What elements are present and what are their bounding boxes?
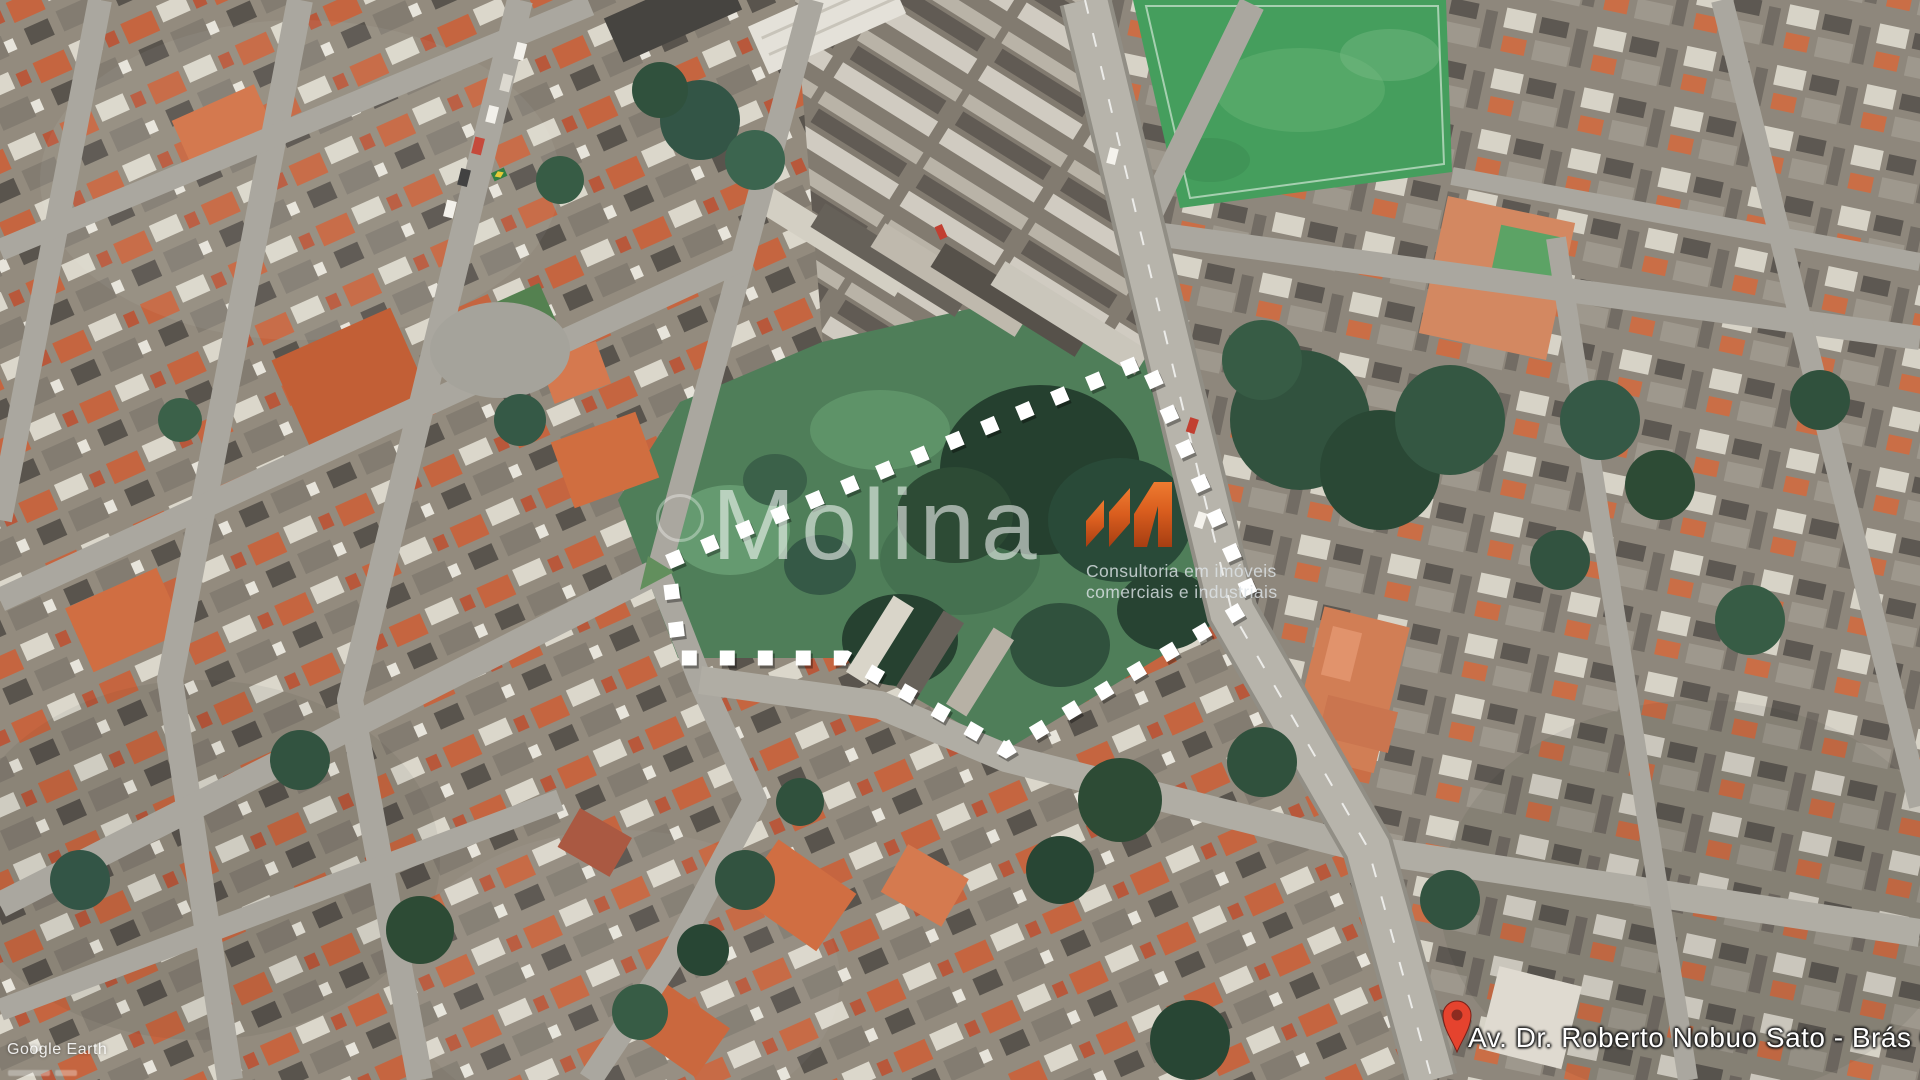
satellite-map[interactable] bbox=[0, 0, 1920, 1080]
aerial-screenshot: Molina Consultoria em imóveis comerciais… bbox=[0, 0, 1920, 1080]
atmosphere-haze bbox=[0, 0, 1920, 1080]
attribution-smudge bbox=[8, 1063, 86, 1070]
street-label: Av. Dr. Roberto Nobuo Sato - Brás Cubas bbox=[1468, 1022, 1920, 1054]
google-earth-watermark: Google Earth bbox=[7, 1041, 107, 1059]
